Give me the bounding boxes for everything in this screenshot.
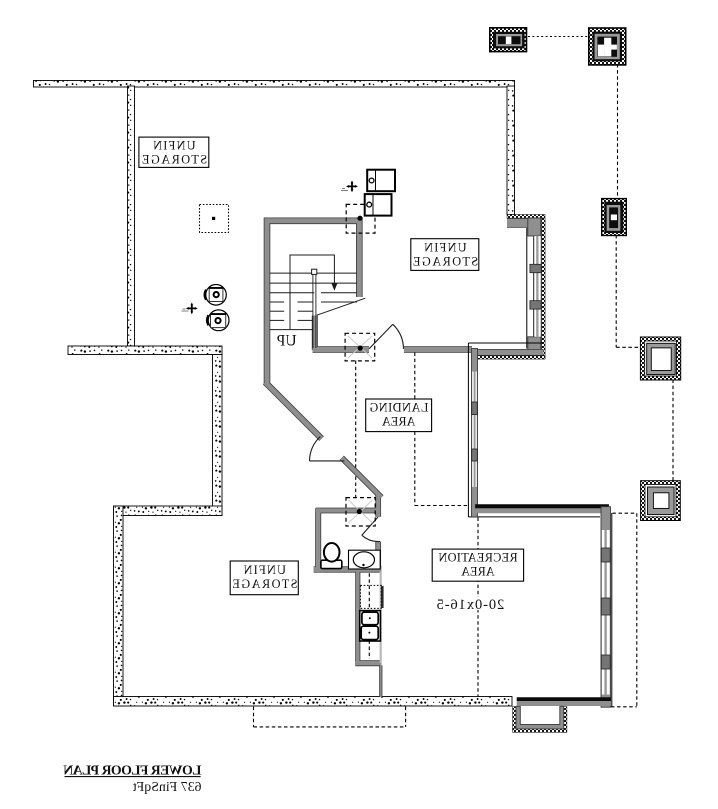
svg-text:UNFIN: UNFIN	[242, 563, 286, 577]
svg-text:RECREATION: RECREATION	[438, 551, 518, 565]
svg-text:STORAGE: STORAGE	[411, 255, 478, 269]
svg-text:UNFIN: UNFIN	[152, 139, 196, 153]
svg-text:637 FinSqFt: 637 FinSqFt	[133, 779, 202, 794]
svg-text:UNFIN: UNFIN	[423, 241, 467, 255]
svg-text:AREA: AREA	[461, 565, 495, 579]
svg-text:AREA: AREA	[382, 415, 416, 429]
svg-text:LANDING: LANDING	[369, 401, 429, 415]
svg-text:STORAGE: STORAGE	[231, 577, 298, 591]
svg-text:20-0x16-5: 20-0x16-5	[436, 597, 505, 613]
svg-text:LOWER FLOOR PLAN: LOWER FLOOR PLAN	[63, 762, 201, 777]
svg-text:STORAGE: STORAGE	[140, 153, 207, 167]
svg-text:UP: UP	[277, 332, 297, 349]
